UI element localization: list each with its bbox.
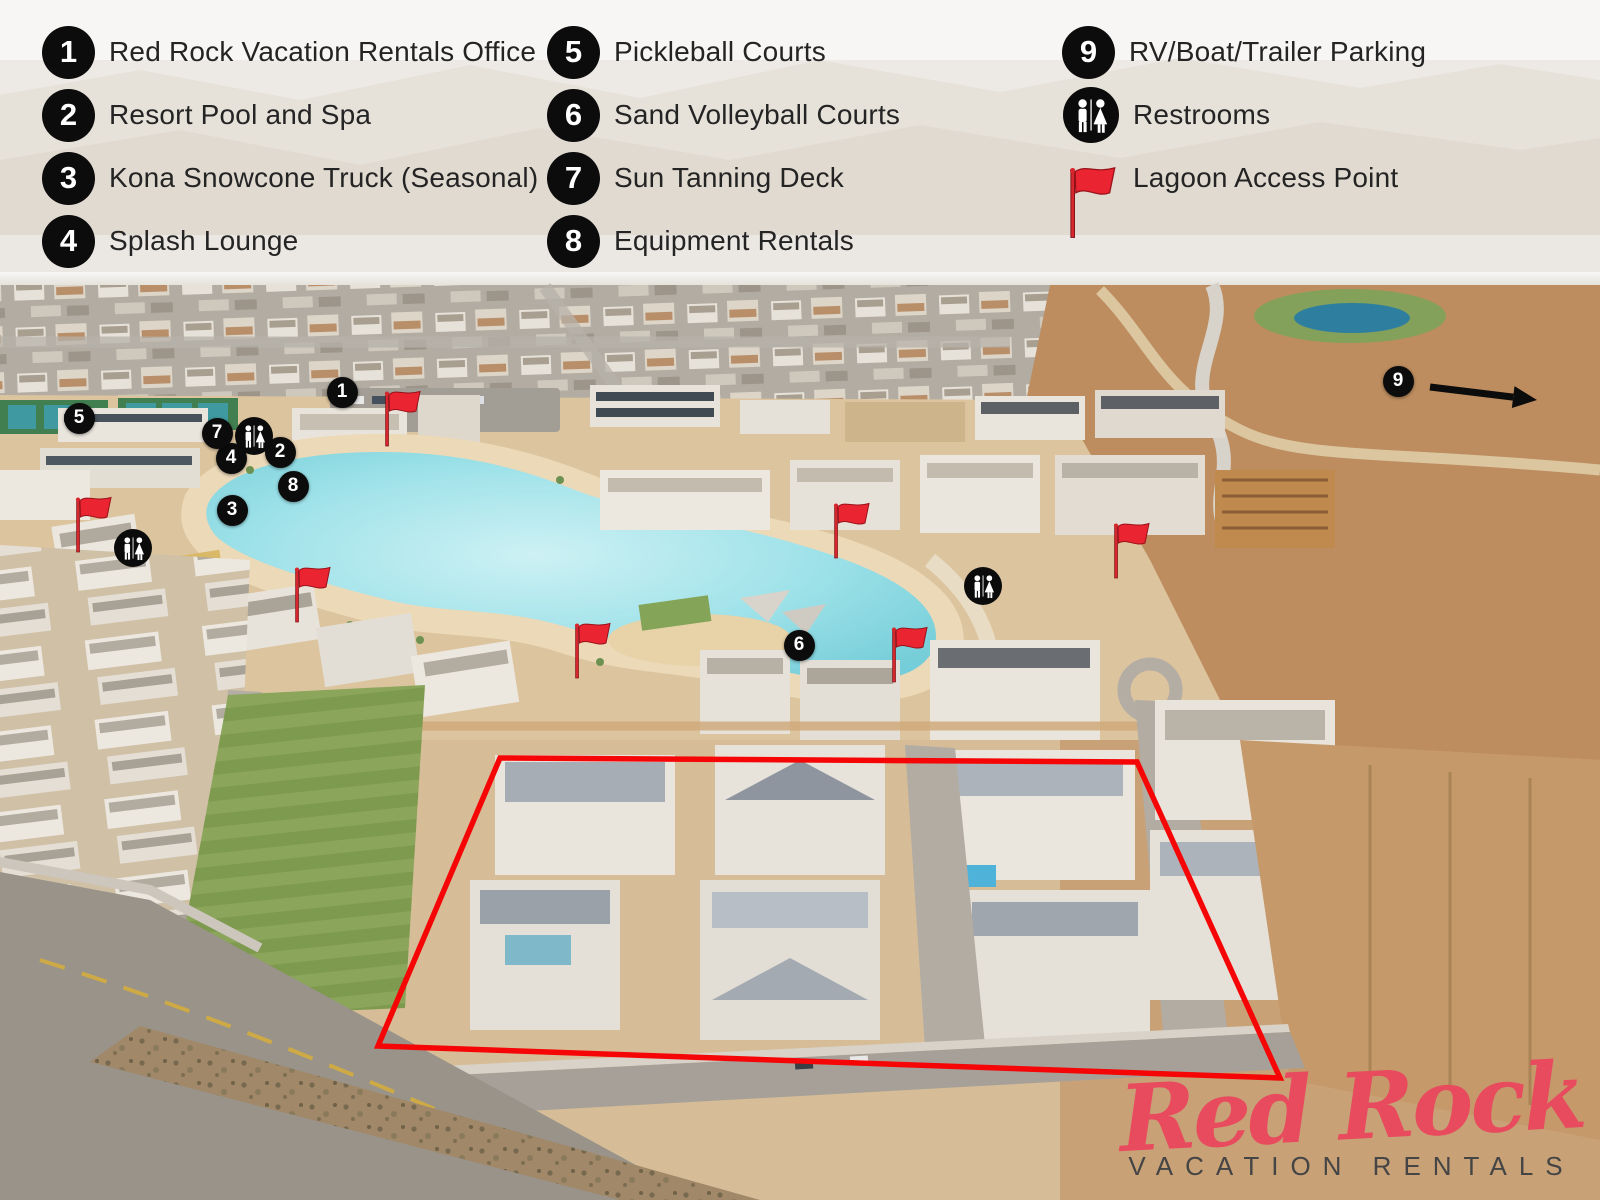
legend-item-label: Lagoon Access Point [1133,162,1398,194]
legend-number-badge: 5 [547,26,600,79]
legend-number-badge: 7 [547,152,600,205]
legend-item-equipment-rentals: 8Equipment Rentals [547,215,1062,267]
legend-item-label: Equipment Rentals [614,225,854,257]
legend-number-badge: 8 [547,215,600,268]
legend-number-badge: 3 [42,152,95,205]
brand-logo: Red Rock VACATION RENTALS [1119,1064,1584,1182]
legend-item-pickleball-courts: 5Pickleball Courts [547,26,1062,78]
legend-item-restrooms: Restrooms [1062,89,1426,141]
legend-number-badge: 4 [42,215,95,268]
map-legend: 1Red Rock Vacation Rentals Office2Resort… [42,26,1426,267]
legend-number-badge: 1 [42,26,95,79]
legend-item-label: Sand Volleyball Courts [614,99,900,131]
legend-column-3: 9RV/Boat/Trailer ParkingRestroomsLagoon … [1062,26,1426,267]
legend-number-badge: 6 [547,89,600,142]
legend-item-label: Red Rock Vacation Rentals Office [109,36,536,68]
legend-number-badge: 2 [42,89,95,142]
brand-logo-script: Red Rock [1117,1052,1586,1164]
legend-item-kona-snowcone-truck-seasonal: 3Kona Snowcone Truck (Seasonal) [42,152,547,204]
legend-item-rv-boat-trailer-parking: 9RV/Boat/Trailer Parking [1062,26,1426,78]
legend-item-label: RV/Boat/Trailer Parking [1129,36,1426,68]
legend-item-splash-lounge: 4Splash Lounge [42,215,547,267]
legend-item-sand-volleyball-courts: 6Sand Volleyball Courts [547,89,1062,141]
legend-item-label: Sun Tanning Deck [614,162,844,194]
legend-item-lagoon-access-point: Lagoon Access Point [1062,152,1426,204]
legend-number-badge: 9 [1062,26,1115,79]
resort-aerial-map: 123456789 1Red Rock Vacation Rentals Off… [0,0,1600,1200]
lagoon-access-flag-icon [1062,166,1119,240]
legend-item-label: Restrooms [1133,99,1270,131]
legend-item-label: Splash Lounge [109,225,298,257]
legend-column-1: 1Red Rock Vacation Rentals Office2Resort… [42,26,547,267]
legend-item-resort-pool-and-spa: 2Resort Pool and Spa [42,89,547,141]
legend-item-red-rock-vacation-rentals-office: 1Red Rock Vacation Rentals Office [42,26,547,78]
legend-item-label: Pickleball Courts [614,36,826,68]
legend-item-label: Resort Pool and Spa [109,99,371,131]
legend-item-label: Kona Snowcone Truck (Seasonal) [109,162,538,194]
legend-item-sun-tanning-deck: 7Sun Tanning Deck [547,152,1062,204]
legend-column-2: 5Pickleball Courts6Sand Volleyball Court… [547,26,1062,267]
restrooms-icon [1062,87,1119,143]
